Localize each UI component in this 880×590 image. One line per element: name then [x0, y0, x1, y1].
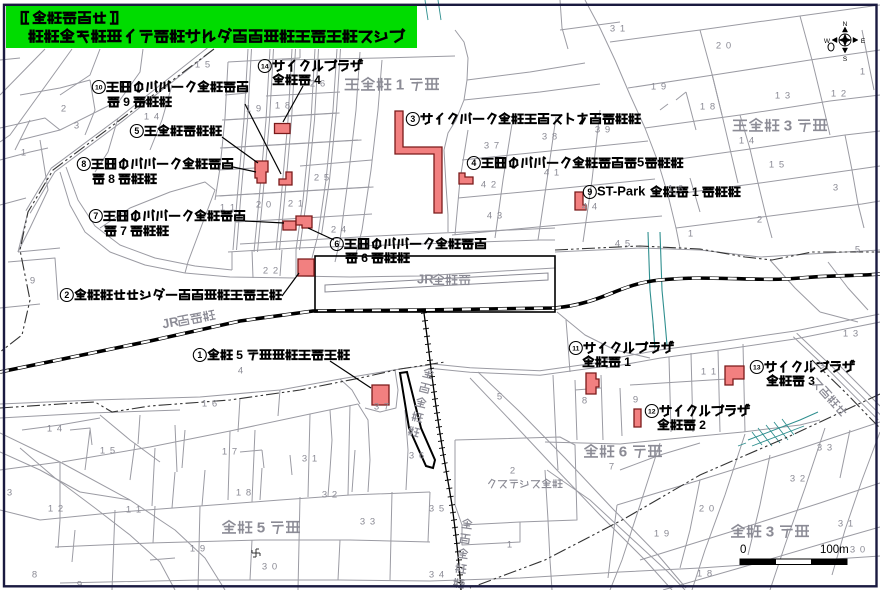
svg-text:2 4: 2 4 [331, 224, 347, 235]
svg-text:2: 2 [64, 290, 69, 300]
svg-text:5: 5 [236, 348, 243, 362]
svg-text:9: 9 [633, 394, 639, 405]
svg-text:3: 3 [784, 118, 792, 135]
svg-text:1 2: 1 2 [831, 88, 847, 99]
svg-text:3 9: 3 9 [595, 124, 611, 135]
svg-text:2: 2 [757, 214, 763, 225]
svg-text:9: 9 [123, 95, 130, 109]
svg-text:8: 8 [81, 159, 86, 169]
svg-text:5: 5 [855, 244, 861, 255]
svg-text:3 2: 3 2 [790, 473, 806, 484]
svg-text:2 0: 2 0 [699, 503, 715, 514]
svg-text:E: E [861, 38, 866, 45]
svg-text:1 9: 1 9 [246, 103, 262, 114]
svg-text:3: 3 [74, 120, 80, 131]
svg-text:0: 0 [740, 544, 746, 556]
svg-text:1: 1 [692, 185, 699, 199]
svg-text:1 8: 1 8 [275, 100, 291, 111]
svg-text:N: N [843, 21, 848, 28]
svg-text:1: 1 [860, 66, 866, 77]
svg-text:2: 2 [510, 465, 516, 476]
svg-text:3 3: 3 3 [817, 442, 833, 453]
svg-text:13: 13 [753, 365, 761, 372]
svg-text:1 8: 1 8 [700, 101, 716, 112]
svg-text:4: 4 [471, 158, 476, 168]
svg-text:3 1: 3 1 [610, 23, 626, 34]
svg-text:4 5: 4 5 [615, 238, 631, 249]
svg-text:1 2: 1 2 [48, 503, 64, 514]
svg-text:1 7: 1 7 [222, 446, 238, 457]
svg-text:4 2: 4 2 [481, 179, 497, 190]
svg-text:1 8: 1 8 [236, 487, 252, 498]
svg-text:7: 7 [120, 224, 127, 238]
svg-text:1 4: 1 4 [144, 111, 160, 122]
svg-text:S: S [843, 56, 848, 63]
svg-text:1: 1 [197, 350, 202, 360]
svg-text:1 5: 1 5 [100, 445, 116, 456]
svg-text:3 1: 3 1 [838, 518, 854, 529]
svg-text:3: 3 [833, 182, 839, 193]
svg-text:2 2: 2 2 [263, 265, 279, 276]
svg-text:2: 2 [61, 103, 67, 114]
svg-text:14: 14 [261, 64, 269, 71]
svg-text:1 1: 1 1 [701, 366, 717, 377]
svg-text:12: 12 [648, 409, 656, 416]
svg-text:1: 1 [688, 228, 694, 239]
svg-text:8: 8 [108, 172, 115, 186]
svg-text:6: 6 [334, 239, 339, 249]
svg-text:1: 1 [21, 147, 27, 158]
svg-text:1 5: 1 5 [195, 59, 211, 70]
svg-text:9: 9 [30, 275, 36, 286]
svg-text:11: 11 [572, 346, 579, 353]
svg-text:1 4: 1 4 [47, 423, 63, 434]
svg-text:1 9: 1 9 [190, 543, 206, 554]
svg-text:W: W [824, 38, 831, 45]
svg-text:3: 3 [808, 374, 815, 388]
svg-text:8: 8 [582, 395, 588, 406]
svg-text:1: 1 [624, 355, 631, 369]
svg-text:3 3: 3 3 [360, 516, 376, 527]
svg-text:1 1: 1 1 [126, 504, 142, 515]
svg-text:3 0: 3 0 [850, 544, 866, 555]
svg-text:2 0: 2 0 [256, 199, 272, 210]
svg-text:8: 8 [32, 569, 38, 580]
svg-text:4: 4 [238, 365, 244, 376]
svg-text:3 6: 3 6 [409, 450, 425, 461]
svg-text:9: 9 [587, 187, 592, 197]
svg-text:1 3: 1 3 [775, 90, 791, 101]
svg-text:3: 3 [7, 487, 13, 498]
svg-text:2 6: 2 6 [310, 78, 326, 89]
svg-text:ST-Park: ST-Park [597, 184, 646, 199]
svg-text:1: 1 [396, 77, 405, 94]
svg-text:5: 5 [257, 520, 266, 537]
svg-text:1 3: 1 3 [843, 328, 859, 339]
svg-text:1 6: 1 6 [202, 398, 218, 409]
svg-text:1: 1 [507, 539, 513, 550]
svg-text:2 1: 2 1 [288, 198, 304, 209]
svg-text:3 0: 3 0 [262, 561, 278, 572]
svg-text:10: 10 [95, 85, 103, 92]
svg-text:1 9: 1 9 [651, 81, 667, 92]
svg-text:7: 7 [93, 211, 98, 221]
svg-text:1 6: 1 6 [668, 183, 684, 194]
svg-text:3 7: 3 7 [374, 401, 390, 412]
svg-text:3 2: 3 2 [322, 489, 338, 500]
svg-text:2: 2 [699, 418, 706, 432]
svg-text:JR: JR [417, 272, 434, 287]
svg-text:4 1: 4 1 [544, 167, 560, 178]
svg-text:3 4: 3 4 [429, 569, 445, 580]
svg-text:3: 3 [410, 114, 415, 124]
svg-text:4 3: 4 3 [487, 210, 503, 221]
svg-text:1 9: 1 9 [654, 528, 670, 539]
svg-text:1 1: 1 1 [220, 202, 236, 213]
svg-text:3 5: 3 5 [429, 503, 445, 514]
svg-text:7: 7 [609, 461, 615, 472]
svg-text:5: 5 [637, 155, 644, 170]
svg-text:6: 6 [361, 251, 368, 265]
svg-text:1 3: 1 3 [809, 360, 825, 371]
svg-text:3 7: 3 7 [484, 140, 500, 151]
svg-text:6: 6 [619, 444, 627, 461]
svg-text:9: 9 [77, 579, 83, 590]
svg-text:3 8: 3 8 [542, 131, 558, 142]
svg-text:2 0: 2 0 [716, 40, 732, 51]
svg-text:1 4: 1 4 [739, 135, 755, 146]
svg-text:3: 3 [766, 524, 774, 541]
svg-text:2 5: 2 5 [314, 172, 330, 183]
svg-text:100m: 100m [820, 544, 849, 556]
svg-text:4 4: 4 4 [582, 201, 598, 212]
svg-text:3 1: 3 1 [302, 453, 318, 464]
svg-text:1 8: 1 8 [697, 568, 713, 579]
svg-text:5: 5 [134, 126, 139, 136]
svg-text:1 5: 1 5 [769, 159, 785, 170]
svg-text:5: 5 [497, 391, 503, 402]
